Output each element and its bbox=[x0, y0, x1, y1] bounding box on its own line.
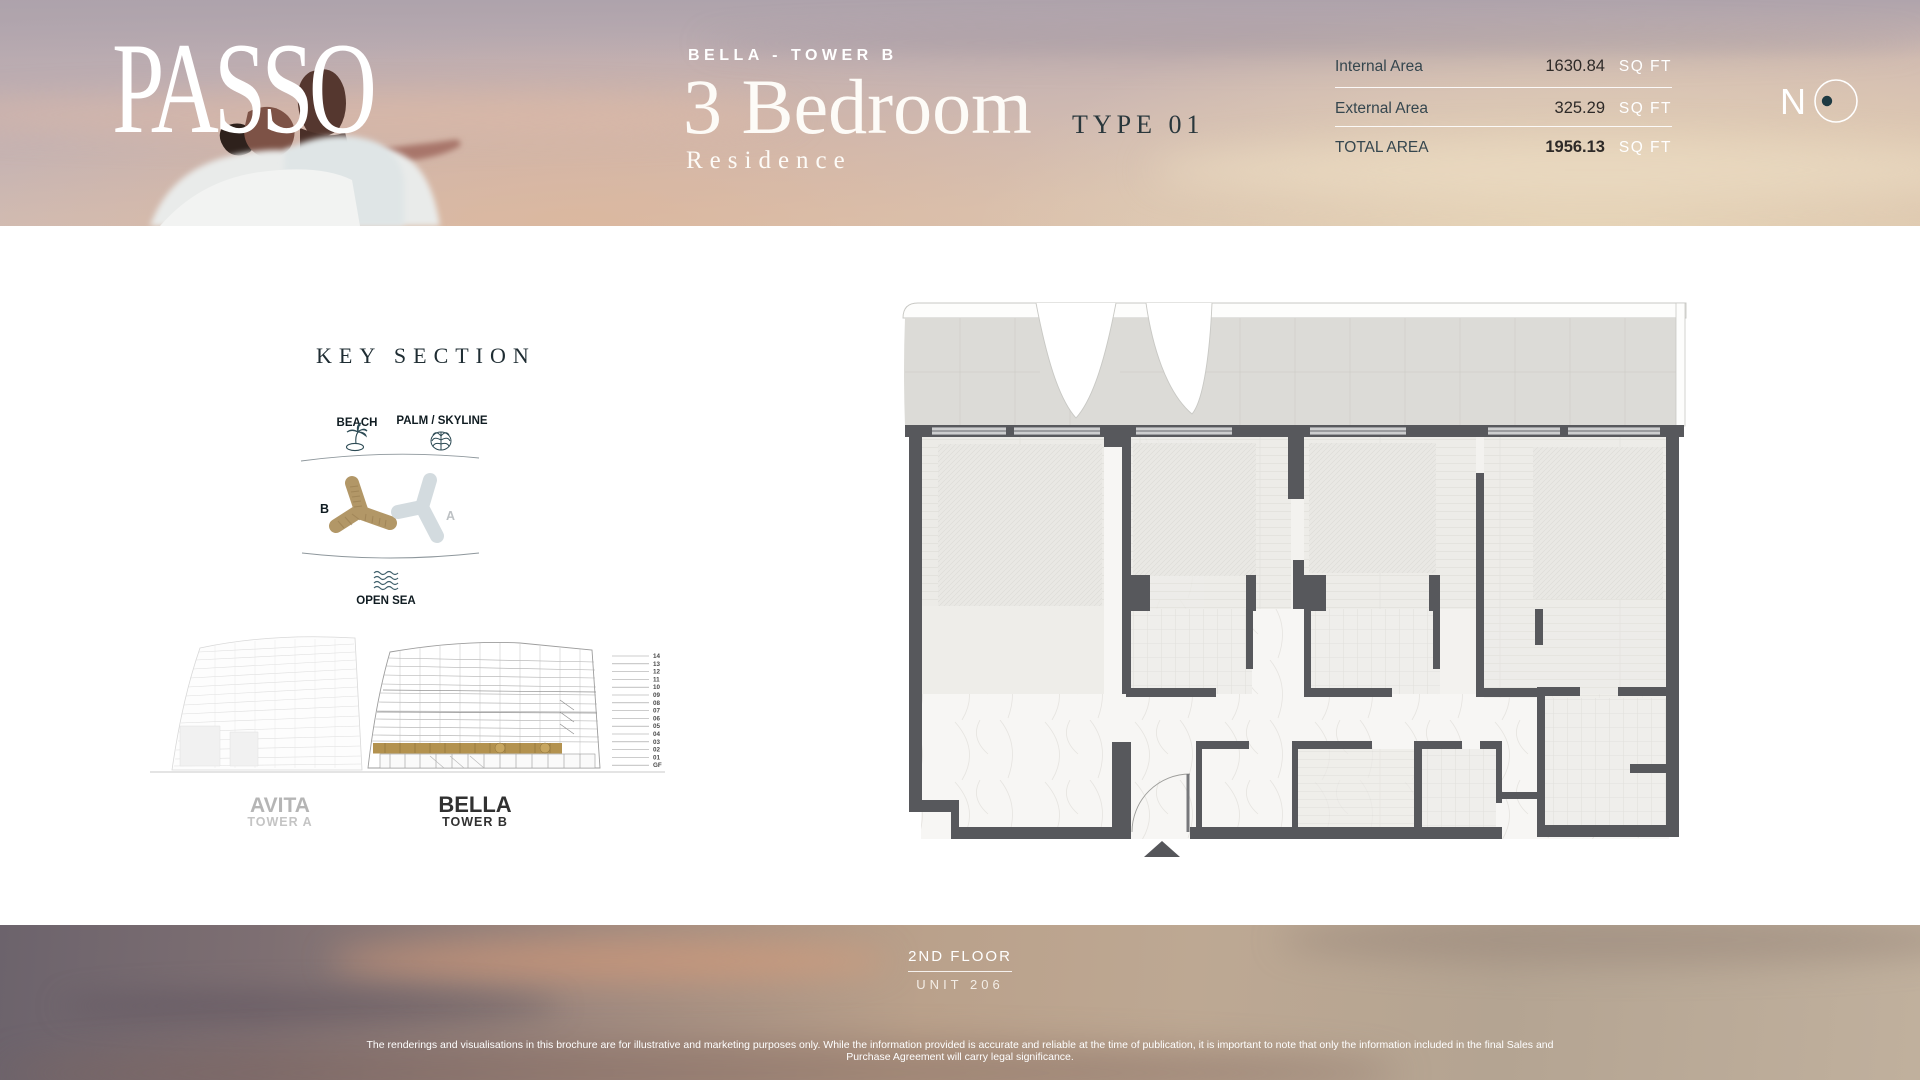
svg-text:GF: GF bbox=[653, 762, 662, 769]
svg-text:KEY SECTION: KEY SECTION bbox=[316, 343, 536, 368]
svg-text:06: 06 bbox=[653, 715, 661, 722]
svg-text:AVITA: AVITA bbox=[250, 794, 310, 817]
svg-text:N: N bbox=[1780, 81, 1806, 122]
svg-text:PALM / SKYLINE: PALM / SKYLINE bbox=[396, 415, 487, 427]
svg-text:TOWER B: TOWER B bbox=[442, 815, 508, 829]
svg-text:B: B bbox=[320, 502, 329, 516]
svg-text:14: 14 bbox=[653, 653, 661, 660]
svg-text:05: 05 bbox=[653, 723, 661, 730]
svg-text:TOWER A: TOWER A bbox=[247, 815, 312, 829]
svg-text:03: 03 bbox=[653, 739, 661, 746]
svg-text:BELLA: BELLA bbox=[438, 792, 511, 817]
svg-text:09: 09 bbox=[653, 692, 661, 699]
svg-text:A: A bbox=[446, 509, 455, 523]
svg-text:12: 12 bbox=[653, 669, 661, 676]
svg-text:01: 01 bbox=[653, 754, 661, 761]
svg-text:04: 04 bbox=[653, 731, 661, 738]
svg-text:08: 08 bbox=[653, 700, 661, 707]
svg-text:11: 11 bbox=[653, 676, 660, 683]
svg-text:OPEN SEA: OPEN SEA bbox=[356, 595, 415, 607]
svg-text:07: 07 bbox=[653, 708, 661, 715]
svg-text:10: 10 bbox=[653, 684, 661, 691]
svg-text:13: 13 bbox=[653, 661, 661, 668]
svg-text:02: 02 bbox=[653, 747, 661, 754]
